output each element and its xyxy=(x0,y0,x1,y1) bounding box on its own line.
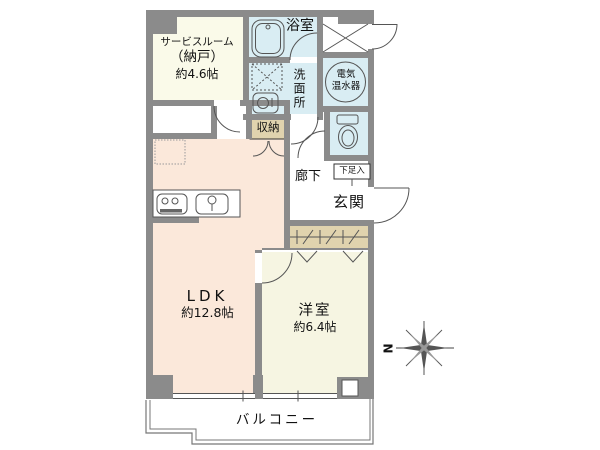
label-entrance: 玄関 xyxy=(327,193,371,212)
door-arc-service-room xyxy=(214,106,240,132)
compass-icon xyxy=(396,321,454,375)
compass-n-label: N xyxy=(382,342,397,356)
meter-box-x-icon xyxy=(323,24,368,52)
pillar-box xyxy=(342,380,358,396)
label-bathroom: 浴室 xyxy=(283,18,317,36)
label-ldk-area: 約12.8帖 xyxy=(160,305,255,321)
floorplan-canvas: サービスルーム （納戸） 約4.6帖 浴室 洗面所 電気 温水器 収納 廊下 下… xyxy=(0,0,600,450)
label-western-room: 洋室 xyxy=(284,302,346,320)
label-water-heater-2: 温水器 xyxy=(324,81,368,93)
door-arc-toilet xyxy=(298,131,325,158)
label-washroom: 洗面所 xyxy=(291,64,306,114)
label-service-room-area: 約4.6帖 xyxy=(150,67,244,82)
room-ldk xyxy=(153,250,255,393)
label-ldk: LDK xyxy=(160,287,255,306)
label-balcony: バルコニー xyxy=(217,412,337,429)
label-water-heater-1: 電気 xyxy=(324,69,368,81)
closet-strip xyxy=(153,106,211,133)
label-shoe-cabinet: 下足入 xyxy=(334,166,370,177)
door-arc-entrance xyxy=(374,188,409,223)
label-service-room: サービスルーム xyxy=(150,36,244,49)
label-western-area: 約6.4帖 xyxy=(284,320,346,335)
label-hallway: 廊下 xyxy=(288,169,328,185)
door-arc-meter-box xyxy=(372,24,397,49)
label-service-room-sub: （納戸） xyxy=(150,49,244,66)
label-storage: 収納 xyxy=(250,120,286,134)
